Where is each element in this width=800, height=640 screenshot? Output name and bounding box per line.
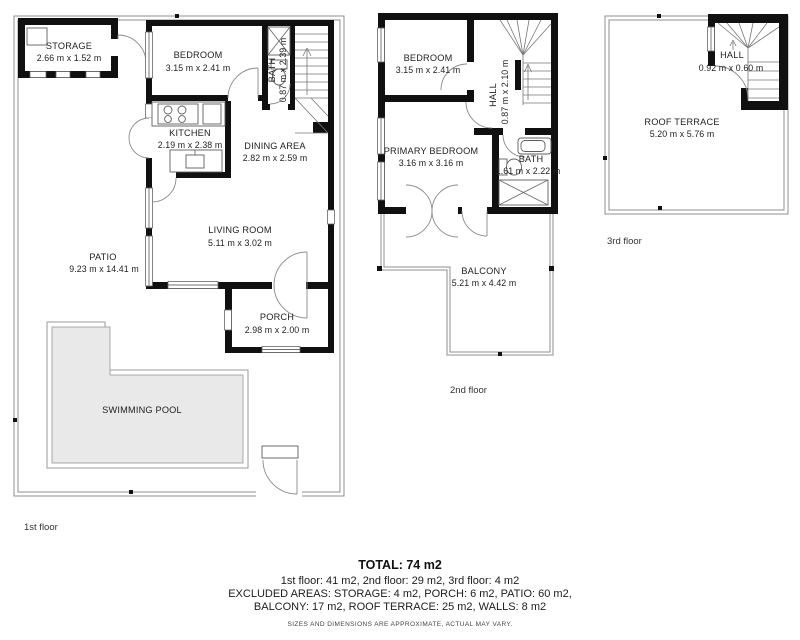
floor2-plan: BEDROOM 3.15 m x 2.41 m HALL 0.87 m x 2.…	[377, 13, 560, 396]
dims-roof-terrace: 5.20 m x 5.76 m	[650, 129, 715, 139]
dims-dining: 2.82 m x 2.59 m	[243, 153, 308, 163]
storage-shelf	[27, 28, 47, 45]
bedroom-door	[228, 68, 258, 98]
floor1-plan: STORAGE 2.66 m x 1.52 m BEDROOM 3.15 m x…	[13, 14, 344, 533]
floorplan-drawing: STORAGE 2.66 m x 1.52 m BEDROOM 3.15 m x…	[0, 0, 800, 640]
floor2-caption: 2nd floor	[450, 385, 487, 396]
label-bath-f1: BATH	[267, 58, 277, 83]
excluded-areas-line1: EXCLUDED AREAS: STORAGE: 4 m2, PORCH: 6 …	[228, 588, 572, 600]
dims-patio: 9.23 m x 14.41 m	[69, 264, 139, 274]
stairs-f1	[295, 34, 328, 133]
balcony-single-door	[462, 211, 487, 236]
label-dining: DINING AREA	[244, 141, 306, 151]
terrace-fence	[603, 14, 788, 214]
label-living: LIVING ROOM	[208, 225, 271, 235]
floor1-caption: 1st floor	[24, 522, 58, 533]
label-balcony: BALCONY	[461, 266, 506, 276]
summary-footer: TOTAL: 74 m2 1st floor: 41 m2, 2nd floor…	[228, 558, 572, 628]
floor3-plan: HALL 0.92 m x 0.60 m ROOF TERRACE 5.20 m…	[603, 14, 788, 247]
dims-storage: 2.66 m x 1.52 m	[37, 53, 102, 63]
dims-bath-f1: 0.87 m x 2.39 m	[278, 38, 288, 103]
dims-bedroom-f1: 3.15 m x 2.41 m	[166, 63, 231, 73]
label-hall-f2: HALL	[488, 83, 498, 107]
floorplan-page: STORAGE 2.66 m x 1.52 m BEDROOM 3.15 m x…	[0, 0, 800, 640]
label-pool: SWIMMING POOL	[102, 405, 182, 415]
label-primary-bedroom: PRIMARY BEDROOM	[384, 146, 479, 156]
stairs-f3	[718, 23, 779, 101]
dims-kitchen: 2.19 m x 2.38 m	[158, 140, 223, 150]
label-bath-f2: BATH	[519, 154, 544, 164]
floor-areas-line: 1st floor: 41 m2, 2nd floor: 29 m2, 3rd …	[281, 575, 519, 587]
label-storage: STORAGE	[46, 41, 92, 51]
floor3-caption: 3rd floor	[607, 236, 642, 247]
dims-hall-f3: 0.92 m x 0.60 m	[699, 63, 764, 73]
label-bedroom-f2: BEDROOM	[404, 53, 453, 63]
sink-icon	[186, 155, 204, 168]
kitchen-living-door	[152, 178, 176, 202]
disclaimer: SIZES AND DIMENSIONS ARE APPROXIMATE, AC…	[287, 621, 512, 628]
label-hall-f3: HALL	[720, 50, 744, 60]
label-patio: PATIO	[89, 252, 116, 262]
excluded-areas-line2: BALCONY: 17 m2, ROOF TERRACE: 25 m2, WAL…	[254, 601, 546, 613]
dims-bedroom-f2: 3.15 m x 2.41 m	[396, 65, 461, 75]
windows-f1	[146, 32, 335, 353]
label-roof-terrace: ROOF TERRACE	[644, 117, 719, 127]
dims-primary-bedroom: 3.16 m x 3.16 m	[399, 158, 464, 168]
total-area: TOTAL: 74 m2	[358, 558, 442, 572]
dims-hall-f2: 0.87 m x 2.10 m	[500, 60, 510, 125]
label-kitchen: KITCHEN	[169, 128, 211, 138]
dims-porch: 2.98 m x 2.00 m	[245, 325, 310, 335]
dims-bath-f2: 1.61 m x 2.22 m	[496, 166, 561, 176]
dims-balcony: 5.21 m x 4.42 m	[452, 278, 517, 288]
dims-living: 5.11 m x 3.02 m	[208, 238, 272, 248]
label-bedroom-f1: BEDROOM	[174, 50, 223, 60]
stove-icon	[158, 104, 198, 124]
swimming-pool	[47, 322, 248, 468]
storage-door	[118, 35, 146, 63]
label-porch: PORCH	[260, 312, 294, 322]
balcony-french-door	[406, 211, 432, 237]
